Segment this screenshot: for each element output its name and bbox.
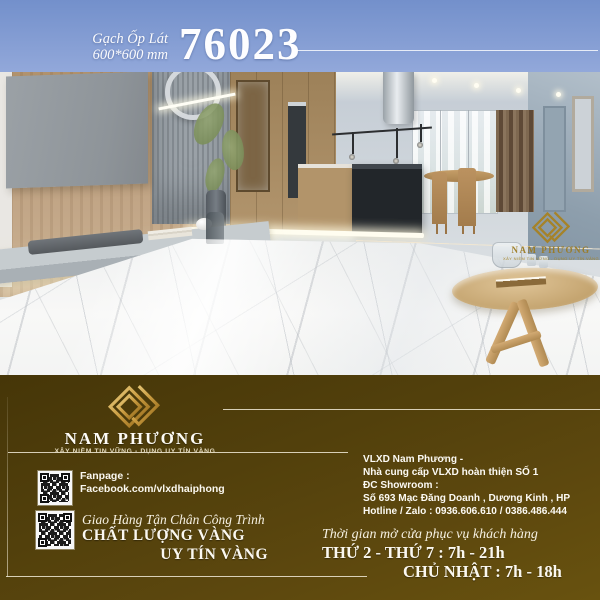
quality-slogan: CHẤT LƯỢNG VÀNG: [82, 527, 245, 545]
product-size-text: 600*600 mm: [0, 47, 168, 63]
fanpage-qr-code-icon: [38, 471, 72, 505]
hotline-line: Hotline / Zalo : 0936.606.610 / 0386.486…: [363, 505, 567, 517]
dining-chair: [432, 172, 447, 224]
fanpage-url: Facebook.com/vlxdhaiphong: [80, 483, 225, 495]
range-hood: [383, 72, 414, 124]
watermark-brand-tagline: XÂY NIỀM TIN VỮNG - DỤNG UY TÍN VÀNG: [503, 256, 599, 261]
brand-name: NAM PHƯƠNG: [35, 429, 235, 449]
chair-leg: [445, 224, 447, 234]
sunday-hours: CHỦ NHẬT : 7h - 18h: [403, 562, 562, 582]
opening-hours-intro: Thời gian mở cửa phục vụ khách hàng: [322, 527, 538, 543]
chair-leg: [436, 224, 438, 234]
showroom-label-line: ĐC Showroom :: [363, 479, 439, 491]
pendant-stem: [352, 132, 354, 154]
header-rule-line: [294, 50, 598, 51]
brand-tagline: XÂY NIỀM TIN VỮNG - DỤNG UY TÍN VÀNG: [35, 448, 235, 455]
address-line: Số 693 Mạc Đăng Doanh , Dương Kinh , HP: [363, 492, 570, 504]
footer-rule-top: [223, 409, 600, 410]
decor-glass-vase: [206, 212, 224, 244]
pendant-stem: [396, 128, 398, 158]
pendant-bulb: [349, 154, 355, 160]
company-desc-line: Nhà cung cấp VLXD hoàn thiện SỐ 1: [363, 466, 538, 478]
delivery-qr-code-icon: [36, 511, 74, 549]
delivery-slogan: Giao Hàng Tận Chân Công Trình: [82, 512, 265, 528]
header-banner: Gạch Ốp Lát 600*600 mm 76023: [0, 0, 600, 72]
product-code: 76023: [179, 21, 302, 67]
watermark-brand-name: NAM PHƯƠNG: [503, 245, 599, 255]
ceiling-spotlight: [474, 83, 479, 88]
footer-info-panel: NAM PHƯƠNG XÂY NIỀM TIN VỮNG - DỤNG UY T…: [0, 375, 600, 600]
dining-chair: [458, 168, 476, 226]
chair-leg: [473, 226, 475, 234]
footer-rule-bottom: [6, 576, 367, 577]
glass-display-cabinet: [236, 80, 270, 192]
interior-door: [543, 106, 566, 212]
ceiling-spotlight: [516, 88, 521, 93]
chair-leg: [462, 226, 464, 234]
company-name-line: VLXD Nam Phương -: [363, 453, 463, 465]
weekday-hours: THỨ 2 - THỨ 7 : 7h - 21h: [322, 543, 505, 563]
product-type-label: Gạch Ốp Lát 600*600 mm: [0, 31, 168, 63]
brand-watermark: NAM PHƯƠNG XÂY NIỀM TIN VỮNG - DỤNG UY T…: [503, 210, 599, 261]
window-sheer-curtains: [412, 110, 498, 214]
product-interior-photo: NAM PHƯƠNG XÂY NIỀM TIN VỮNG - DỤNG UY T…: [0, 72, 600, 375]
prestige-slogan: UY TÍN VÀNG: [82, 546, 268, 564]
pendant-bulb: [417, 142, 423, 148]
brand-logo-diamond-icon: [102, 383, 166, 429]
wall-tv-panel: [6, 72, 148, 188]
ceiling-spotlight: [432, 78, 437, 83]
poster-canvas: Gạch Ốp Lát 600*600 mm 76023: [0, 0, 600, 600]
wall-art-frame: [572, 96, 594, 192]
fanpage-label: Fanpage :: [80, 470, 130, 482]
product-type-text: Gạch Ốp Lát: [0, 31, 168, 47]
brown-drape-curtain: [496, 110, 534, 212]
watermark-diamond-logo-icon: [532, 210, 570, 244]
black-marble-island: [352, 164, 422, 234]
pendant-stem: [420, 124, 422, 142]
footer-rule-left-edge: [7, 397, 8, 577]
ceiling-spotlight: [556, 92, 561, 97]
